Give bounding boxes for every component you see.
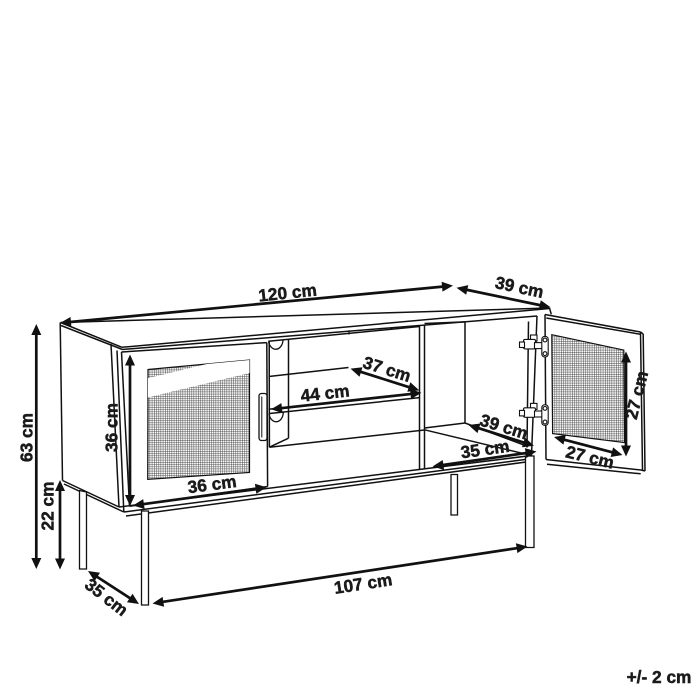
- svg-text:63 cm: 63 cm: [17, 413, 37, 462]
- svg-text:36 cm: 36 cm: [102, 403, 122, 452]
- svg-text:+/- 2 cm: +/- 2 cm: [627, 667, 692, 687]
- svg-text:22 cm: 22 cm: [38, 481, 58, 530]
